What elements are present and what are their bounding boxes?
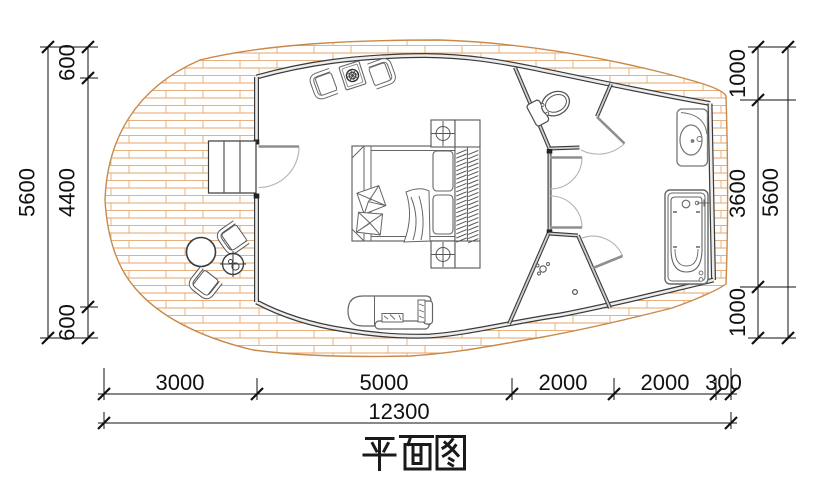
svg-text:12300: 12300: [368, 399, 429, 424]
svg-text:5600: 5600: [15, 168, 40, 217]
svg-text:2000: 2000: [539, 370, 588, 395]
svg-text:3600: 3600: [725, 169, 750, 218]
svg-text:5000: 5000: [360, 370, 409, 395]
svg-text:600: 600: [55, 304, 80, 341]
svg-text:1000: 1000: [725, 49, 750, 98]
svg-text:600: 600: [55, 44, 80, 81]
svg-text:300: 300: [705, 370, 742, 395]
svg-text:4400: 4400: [55, 168, 80, 217]
svg-text:1000: 1000: [725, 288, 750, 337]
svg-text:2000: 2000: [641, 370, 690, 395]
svg-text:5600: 5600: [758, 168, 783, 217]
svg-text:3000: 3000: [156, 370, 205, 395]
